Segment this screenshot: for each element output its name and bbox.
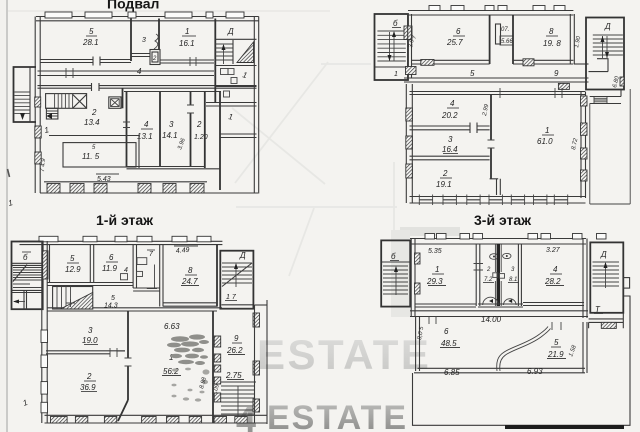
svg-text:9: 9	[234, 334, 239, 343]
svg-text:5: 5	[470, 69, 475, 78]
svg-text:13.4: 13.4	[84, 118, 100, 127]
svg-text:61.0: 61.0	[537, 137, 553, 146]
svg-text:11.9: 11.9	[102, 264, 118, 273]
svg-text:29.3: 29.3	[426, 277, 443, 286]
svg-text:Д: Д	[600, 250, 607, 259]
svg-text:4: 4	[124, 267, 128, 274]
svg-text:3: 3	[448, 135, 453, 144]
svg-text:5.66: 5.66	[501, 39, 513, 45]
svg-text:4: 4	[553, 265, 558, 274]
svg-text:07.: 07.	[501, 27, 509, 33]
svg-text:48.5: 48.5	[441, 339, 457, 348]
svg-text:Д: Д	[227, 27, 234, 36]
svg-text:19.1: 19.1	[436, 180, 452, 189]
svg-text:6.93: 6.93	[527, 367, 543, 376]
svg-text:3: 3	[142, 37, 146, 44]
svg-text:6.63: 6.63	[164, 322, 180, 331]
svg-text:28.1: 28.1	[82, 38, 99, 47]
svg-text:16.1: 16.1	[179, 39, 195, 48]
svg-text:5: 5	[554, 338, 559, 347]
svg-text:8: 8	[188, 266, 193, 275]
svg-text:3: 3	[88, 326, 93, 335]
svg-text:1: 1	[545, 126, 549, 135]
svg-text:1-й этаж: 1-й этаж	[96, 212, 154, 228]
svg-text:9: 9	[554, 69, 559, 78]
svg-text:26.2: 26.2	[226, 346, 243, 355]
svg-text:1: 1	[185, 27, 189, 36]
svg-text:19. 8: 19. 8	[543, 39, 561, 48]
svg-text:21.9: 21.9	[547, 350, 564, 359]
svg-text:19.0: 19.0	[82, 336, 98, 345]
svg-text:14.00: 14.00	[481, 315, 502, 324]
svg-text:ESTATE: ESTATE	[257, 331, 431, 378]
svg-text:2: 2	[196, 120, 202, 129]
svg-text:6: 6	[456, 27, 461, 36]
svg-text:2: 2	[442, 169, 448, 178]
svg-text:20.2: 20.2	[441, 111, 458, 120]
svg-text:5.35: 5.35	[428, 248, 442, 255]
svg-text:б: б	[23, 253, 28, 262]
svg-text:11. 5: 11. 5	[82, 152, 100, 161]
svg-text:4.49: 4.49	[176, 247, 190, 255]
svg-text:2: 2	[91, 108, 97, 117]
svg-text:б: б	[393, 19, 398, 28]
svg-text:16.4: 16.4	[442, 145, 458, 154]
svg-text:56.2: 56.2	[163, 367, 179, 376]
svg-text:3.27: 3.27	[546, 247, 561, 254]
svg-text:б: б	[391, 252, 396, 261]
svg-text:1: 1	[394, 71, 398, 78]
svg-text:5.43: 5.43	[97, 176, 111, 183]
svg-text:24.7: 24.7	[181, 277, 198, 286]
svg-text:14.1: 14.1	[162, 131, 178, 140]
svg-text:6.85: 6.85	[444, 368, 460, 377]
svg-text:2: 2	[152, 56, 157, 62]
svg-text:1 7: 1 7	[226, 294, 237, 301]
svg-text:5: 5	[89, 27, 94, 36]
svg-text:Подвал: Подвал	[107, 0, 159, 12]
svg-text:6: 6	[444, 327, 449, 336]
svg-text:2.75: 2.75	[225, 371, 242, 380]
svg-text:4: 4	[450, 99, 455, 108]
svg-text:7 4.9: 7 4.9	[40, 158, 47, 172]
svg-text:3: 3	[169, 120, 174, 129]
svg-text:5: 5	[70, 254, 75, 263]
svg-text:25.7: 25.7	[446, 38, 463, 47]
svg-text:6: 6	[109, 253, 114, 262]
svg-text:2: 2	[86, 372, 92, 381]
svg-text:14.3: 14.3	[104, 303, 118, 310]
svg-text:5: 5	[111, 295, 115, 302]
svg-text:28.2: 28.2	[544, 277, 561, 286]
svg-text:4: 4	[137, 67, 142, 76]
svg-text:3-й этаж: 3-й этаж	[474, 212, 532, 228]
svg-text:ESTATE: ESTATE	[267, 399, 408, 432]
svg-text:4: 4	[144, 120, 149, 129]
svg-text:12.9: 12.9	[65, 265, 81, 274]
svg-text:Д: Д	[239, 251, 246, 260]
svg-text:2: 2	[486, 267, 491, 273]
svg-text:Д: Д	[604, 22, 611, 31]
svg-text:1: 1	[435, 265, 439, 274]
svg-text:36.9: 36.9	[80, 383, 96, 392]
svg-text:8: 8	[549, 27, 554, 36]
